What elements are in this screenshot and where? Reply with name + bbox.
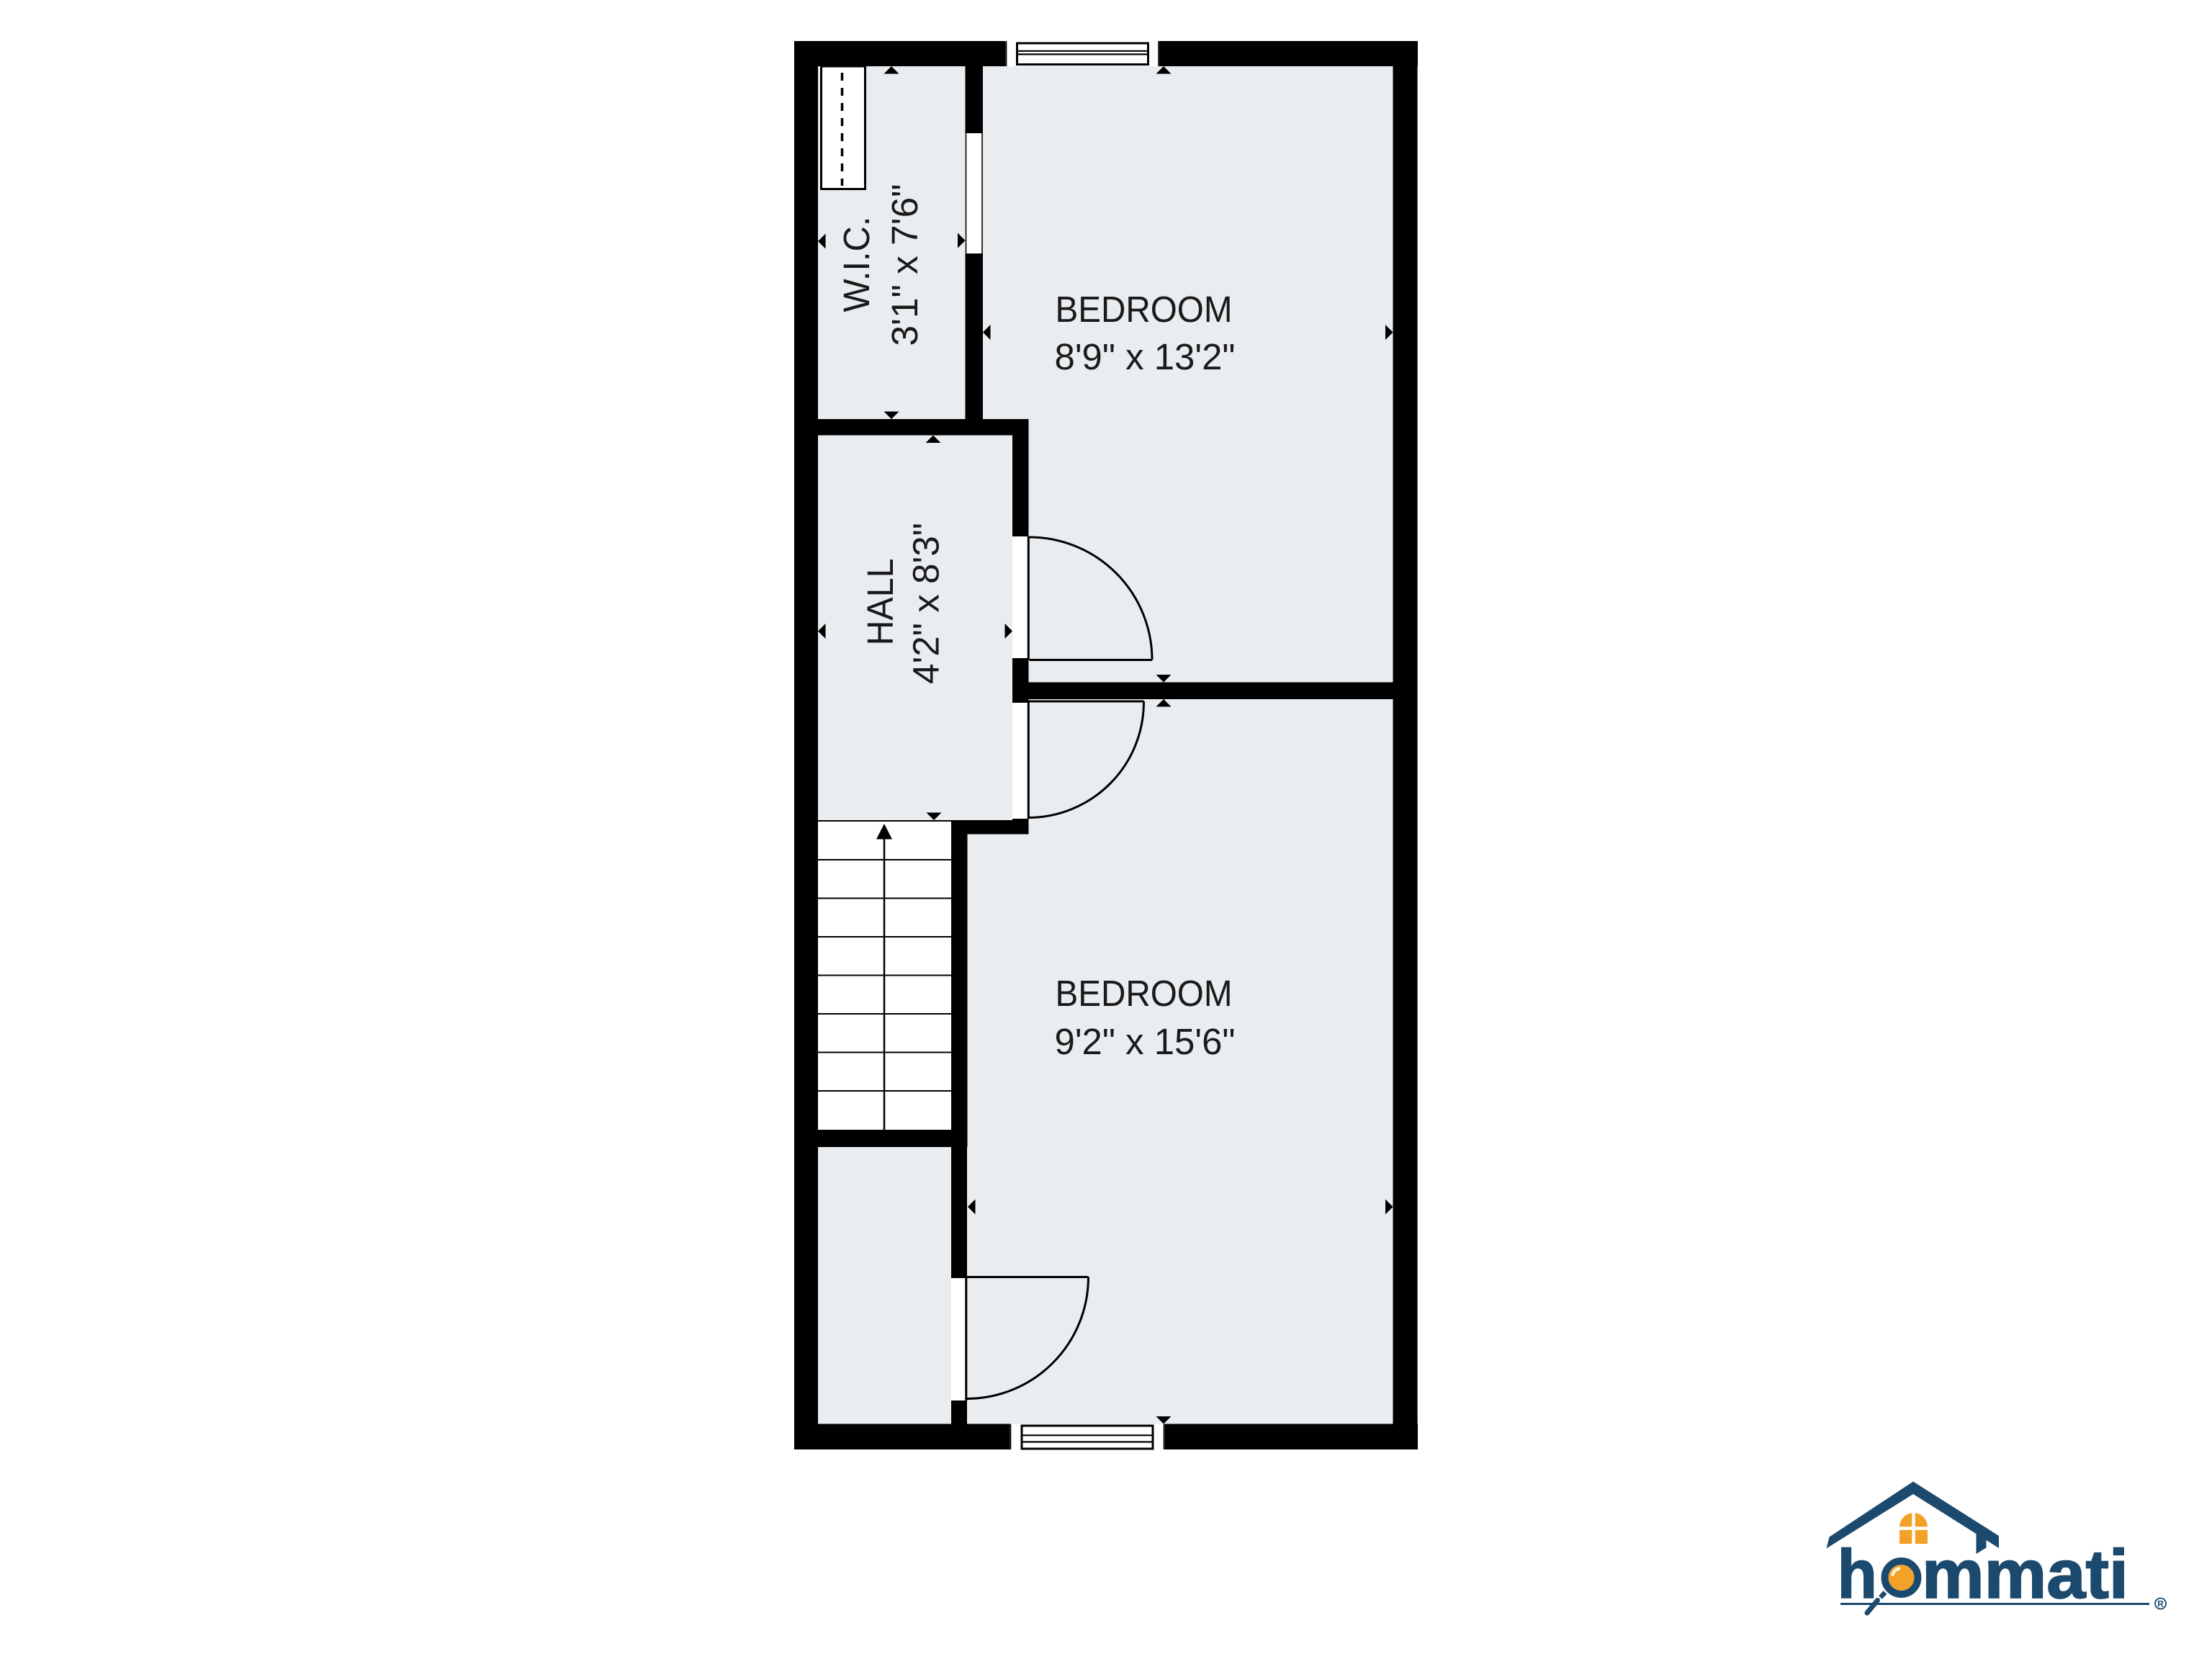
svg-text:HALL: HALL xyxy=(860,559,901,646)
svg-text:9'2" x 15'6": 9'2" x 15'6" xyxy=(1055,1021,1236,1062)
svg-text:3'1" x 7'6": 3'1" x 7'6" xyxy=(884,184,925,346)
svg-text:W.I.C.: W.I.C. xyxy=(836,217,877,313)
svg-text:BEDROOM: BEDROOM xyxy=(1056,289,1233,330)
svg-text:4'2" x 8'3": 4'2" x 8'3" xyxy=(906,523,947,684)
svg-text:h: h xyxy=(1838,1536,1878,1613)
svg-text:R: R xyxy=(2157,1599,2164,1609)
svg-text:mmati: mmati xyxy=(1922,1536,2128,1613)
svg-text:8'9" x 13'2": 8'9" x 13'2" xyxy=(1055,336,1236,377)
svg-text:BEDROOM: BEDROOM xyxy=(1056,973,1233,1014)
